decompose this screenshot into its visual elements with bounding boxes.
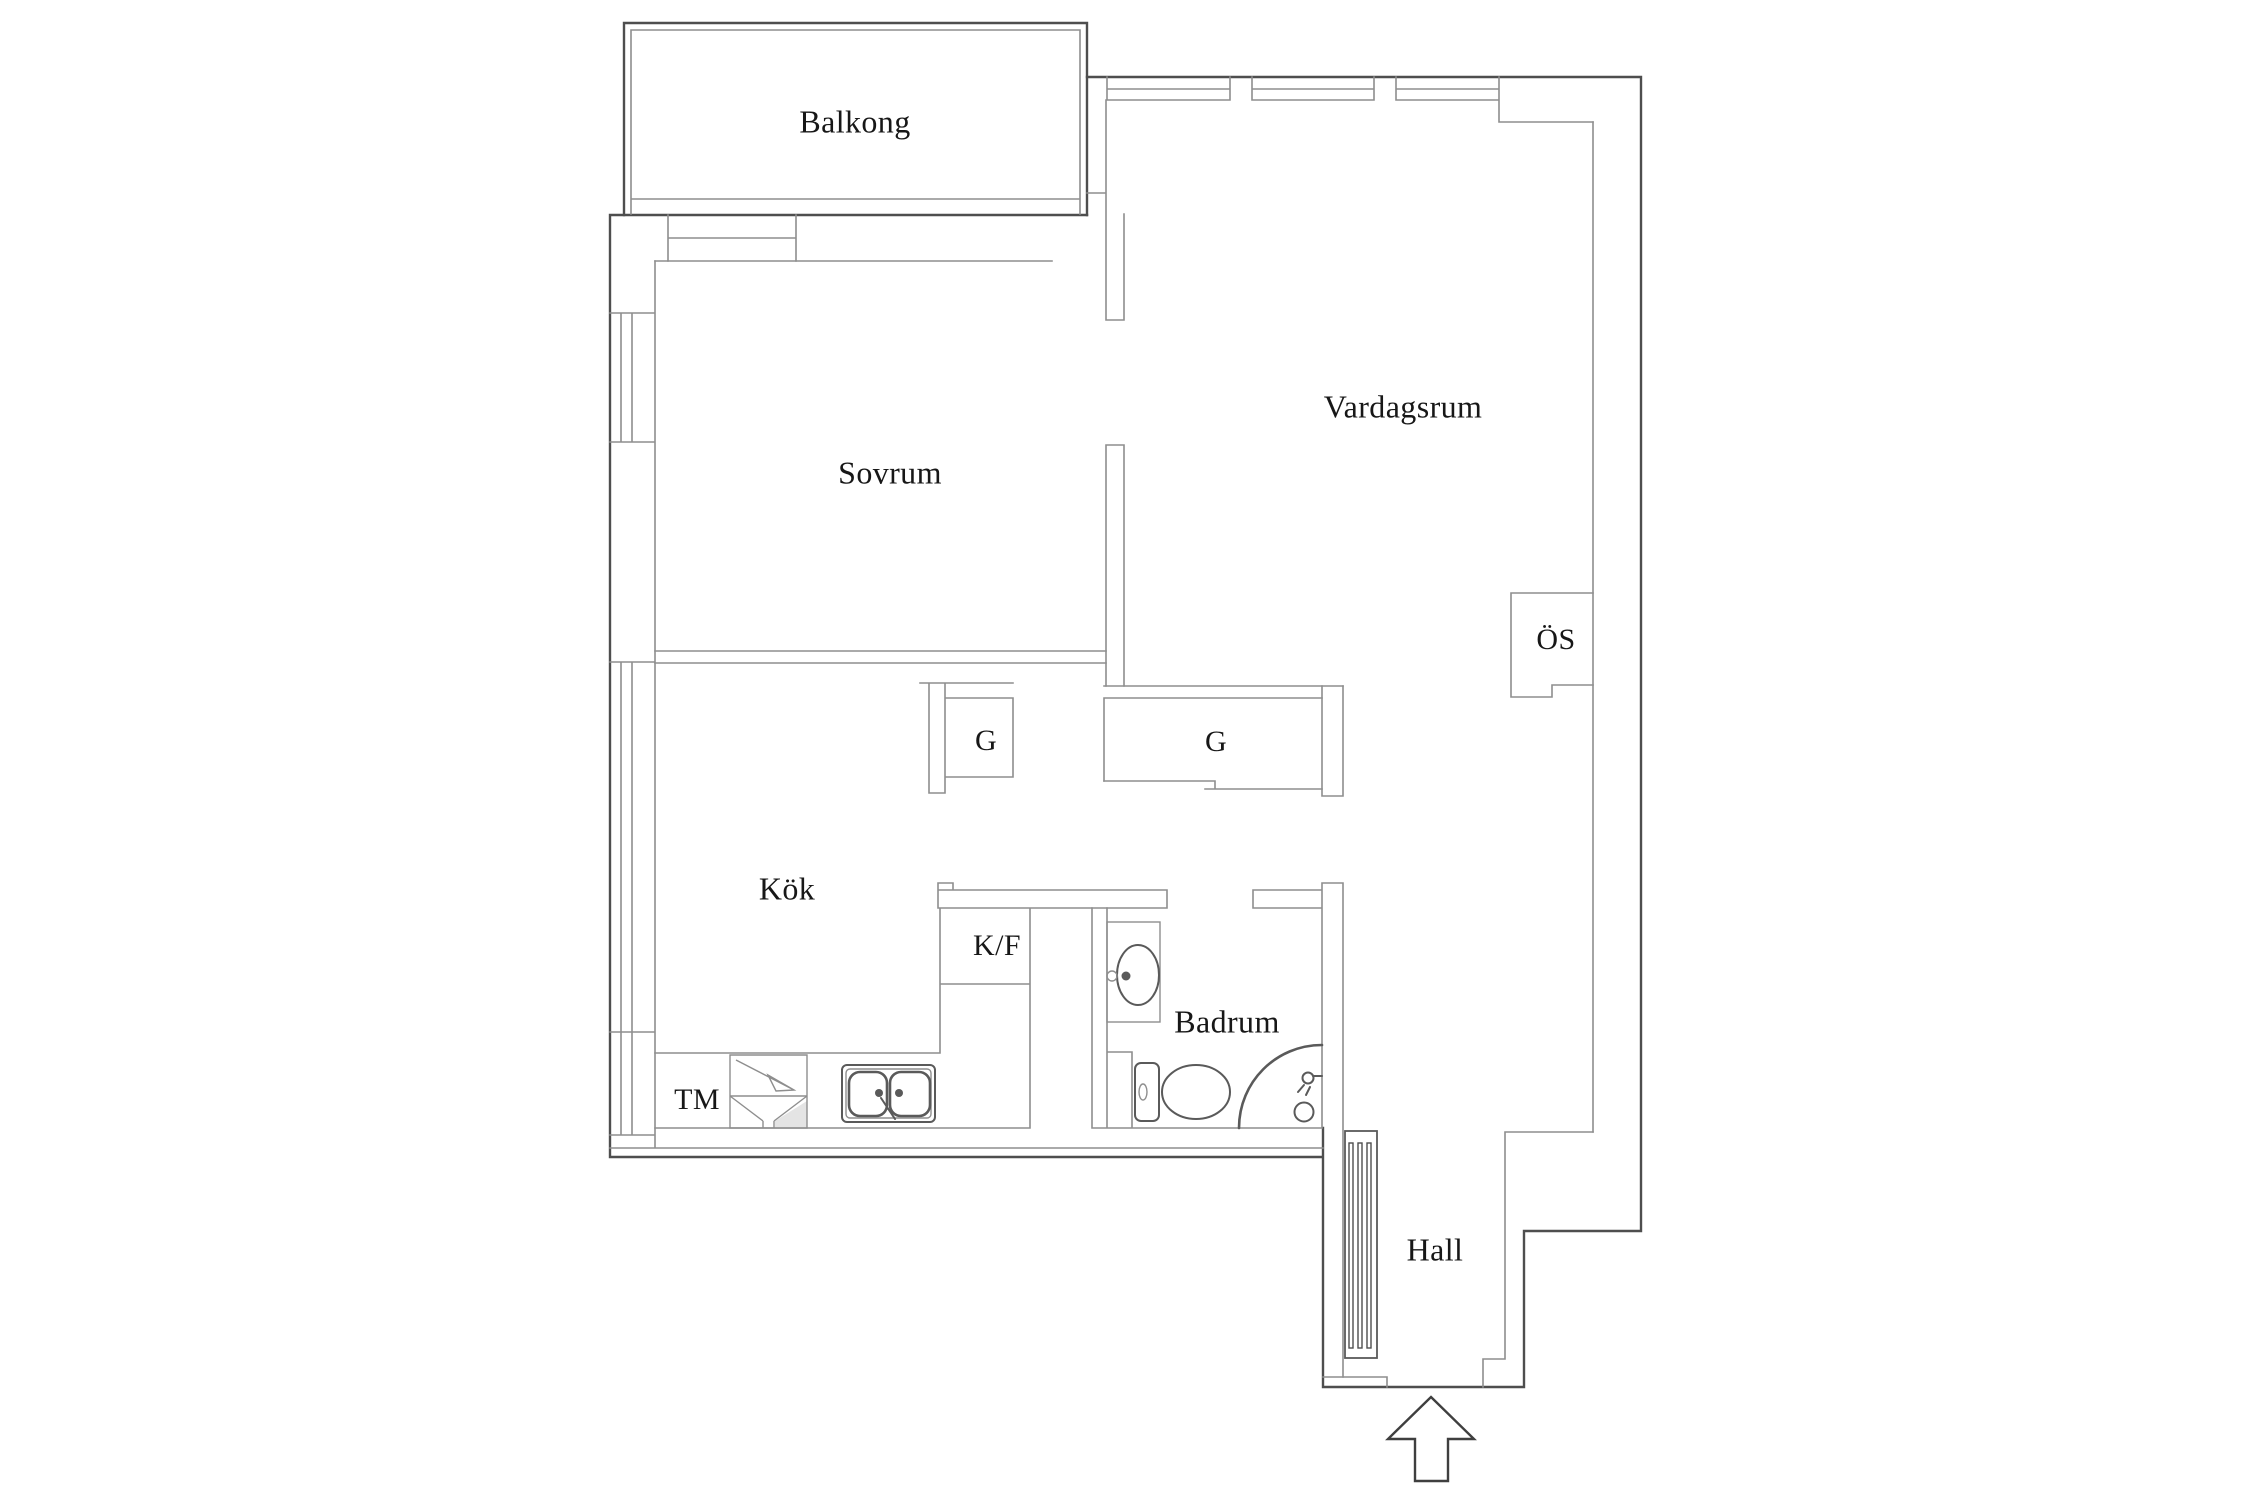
kitchen-walls bbox=[655, 883, 1167, 1128]
entrance-arrow-icon bbox=[1388, 1397, 1474, 1481]
kitchen-sink-icon bbox=[842, 1065, 935, 1122]
outer-walls bbox=[610, 77, 1641, 1387]
room-label-balkong: Balkong bbox=[799, 104, 910, 141]
label-os-cabinet: ÖS bbox=[1536, 623, 1575, 657]
room-label-sovrum: Sovrum bbox=[838, 455, 942, 492]
window-symbol bbox=[668, 215, 796, 261]
label-closet-right: G bbox=[1205, 725, 1227, 759]
sovrum-south-wall bbox=[655, 651, 1106, 663]
label-fridge-freezer: K/F bbox=[973, 929, 1021, 963]
washbasin-icon bbox=[1107, 922, 1160, 1022]
washing-machine-icon bbox=[730, 1055, 807, 1128]
shower-head-icon bbox=[1295, 1073, 1323, 1122]
floor-plan-drawing bbox=[0, 0, 2250, 1500]
radiator-icon bbox=[1345, 1131, 1377, 1358]
room-label-badrum: Badrum bbox=[1174, 1004, 1280, 1041]
sliding-closet-doors bbox=[1104, 781, 1322, 789]
label-closet-left: G bbox=[975, 724, 997, 758]
room-label-hall: Hall bbox=[1407, 1232, 1464, 1269]
vardagsrum-north-windows bbox=[1107, 77, 1593, 122]
toilet-icon bbox=[1135, 1063, 1230, 1121]
room-label-vardagsrum: Vardagsrum bbox=[1324, 389, 1483, 426]
bathroom-walls bbox=[1092, 883, 1343, 1377]
label-washing-machine: TM bbox=[674, 1083, 720, 1117]
floor-plan: Balkong Sovrum Vardagsrum Kök Badrum Hal… bbox=[0, 0, 2250, 1500]
room-divider-wall bbox=[1087, 100, 1124, 686]
closet-left bbox=[920, 683, 1013, 793]
room-label-kok: Kök bbox=[759, 871, 815, 908]
